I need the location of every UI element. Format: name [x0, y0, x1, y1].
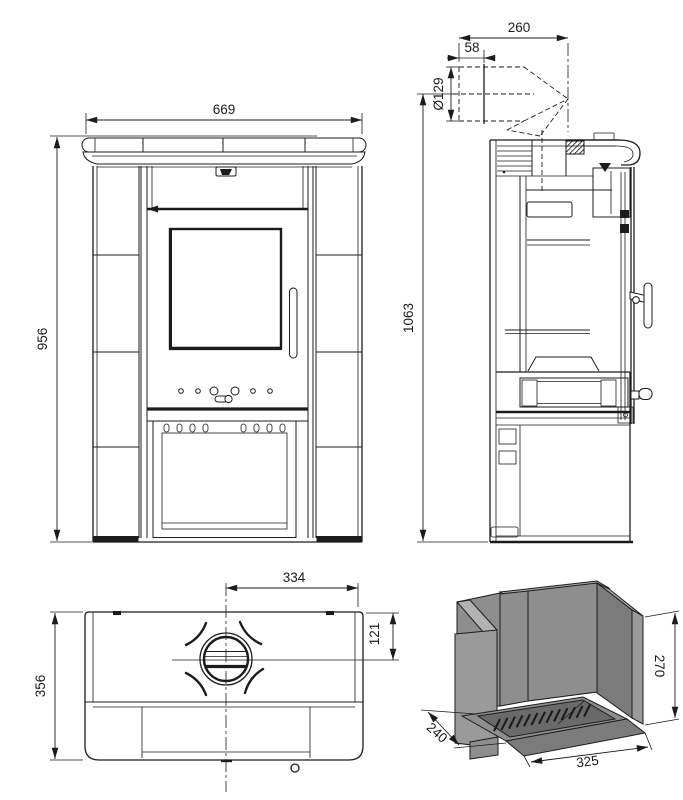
stove-dimension-drawing: 669 956	[0, 0, 683, 800]
side-view: 260 58 Ø129 1063	[401, 20, 652, 542]
right-tile-column	[316, 166, 362, 542]
air-slider	[215, 395, 232, 402]
base-section	[490, 372, 633, 542]
top-view: 334 121 356	[33, 570, 399, 792]
firebox-3d-view: 270 240 325	[421, 581, 679, 770]
dim-front-height: 956	[35, 328, 50, 351]
vent-slots	[164, 424, 285, 432]
right-wall-edge	[632, 610, 643, 724]
flue-pipe-dashed	[453, 64, 568, 192]
dim-top-half-width: 334	[283, 570, 306, 585]
dim-side-total-height: 1063	[401, 303, 416, 333]
dim-firebox-height: 270	[652, 655, 667, 678]
wood-niche-section	[520, 378, 628, 407]
dim-firebox-depth: 240	[424, 720, 451, 746]
hinge-pin-left	[113, 611, 121, 615]
floor-anchor-point	[291, 764, 299, 772]
side-door-handle	[630, 283, 652, 328]
door-window	[169, 229, 282, 349]
stove-top-cap	[82, 138, 366, 167]
latch-stem	[631, 391, 639, 399]
left-foot	[94, 536, 139, 542]
dim-firebox-width: 325	[575, 753, 599, 771]
dim-flue-rear-offset: 260	[508, 20, 531, 35]
back-panel-right	[528, 583, 597, 701]
door-handle	[290, 288, 298, 358]
base-door	[153, 421, 296, 538]
damper-control	[216, 167, 236, 176]
technical-drawing-sheet: 669 956	[0, 0, 683, 800]
front-view: 669 956	[35, 102, 366, 542]
back-panel-left	[500, 591, 528, 706]
dim-front-width: 669	[213, 102, 236, 117]
hinge-pin-right	[326, 611, 334, 615]
door-top-mechanism	[593, 163, 630, 233]
gasket-hatch	[566, 141, 584, 154]
latch-knob	[639, 389, 652, 400]
dim-flue-small-offset: 58	[464, 40, 479, 55]
dim-top-flue-center: 121	[367, 623, 382, 646]
left-tile-column	[93, 166, 139, 542]
flue-collar-circle	[186, 622, 263, 695]
right-foot	[317, 536, 362, 542]
dim-top-depth: 356	[33, 675, 48, 698]
control-knobs	[179, 387, 273, 403]
top-outline	[85, 612, 363, 760]
